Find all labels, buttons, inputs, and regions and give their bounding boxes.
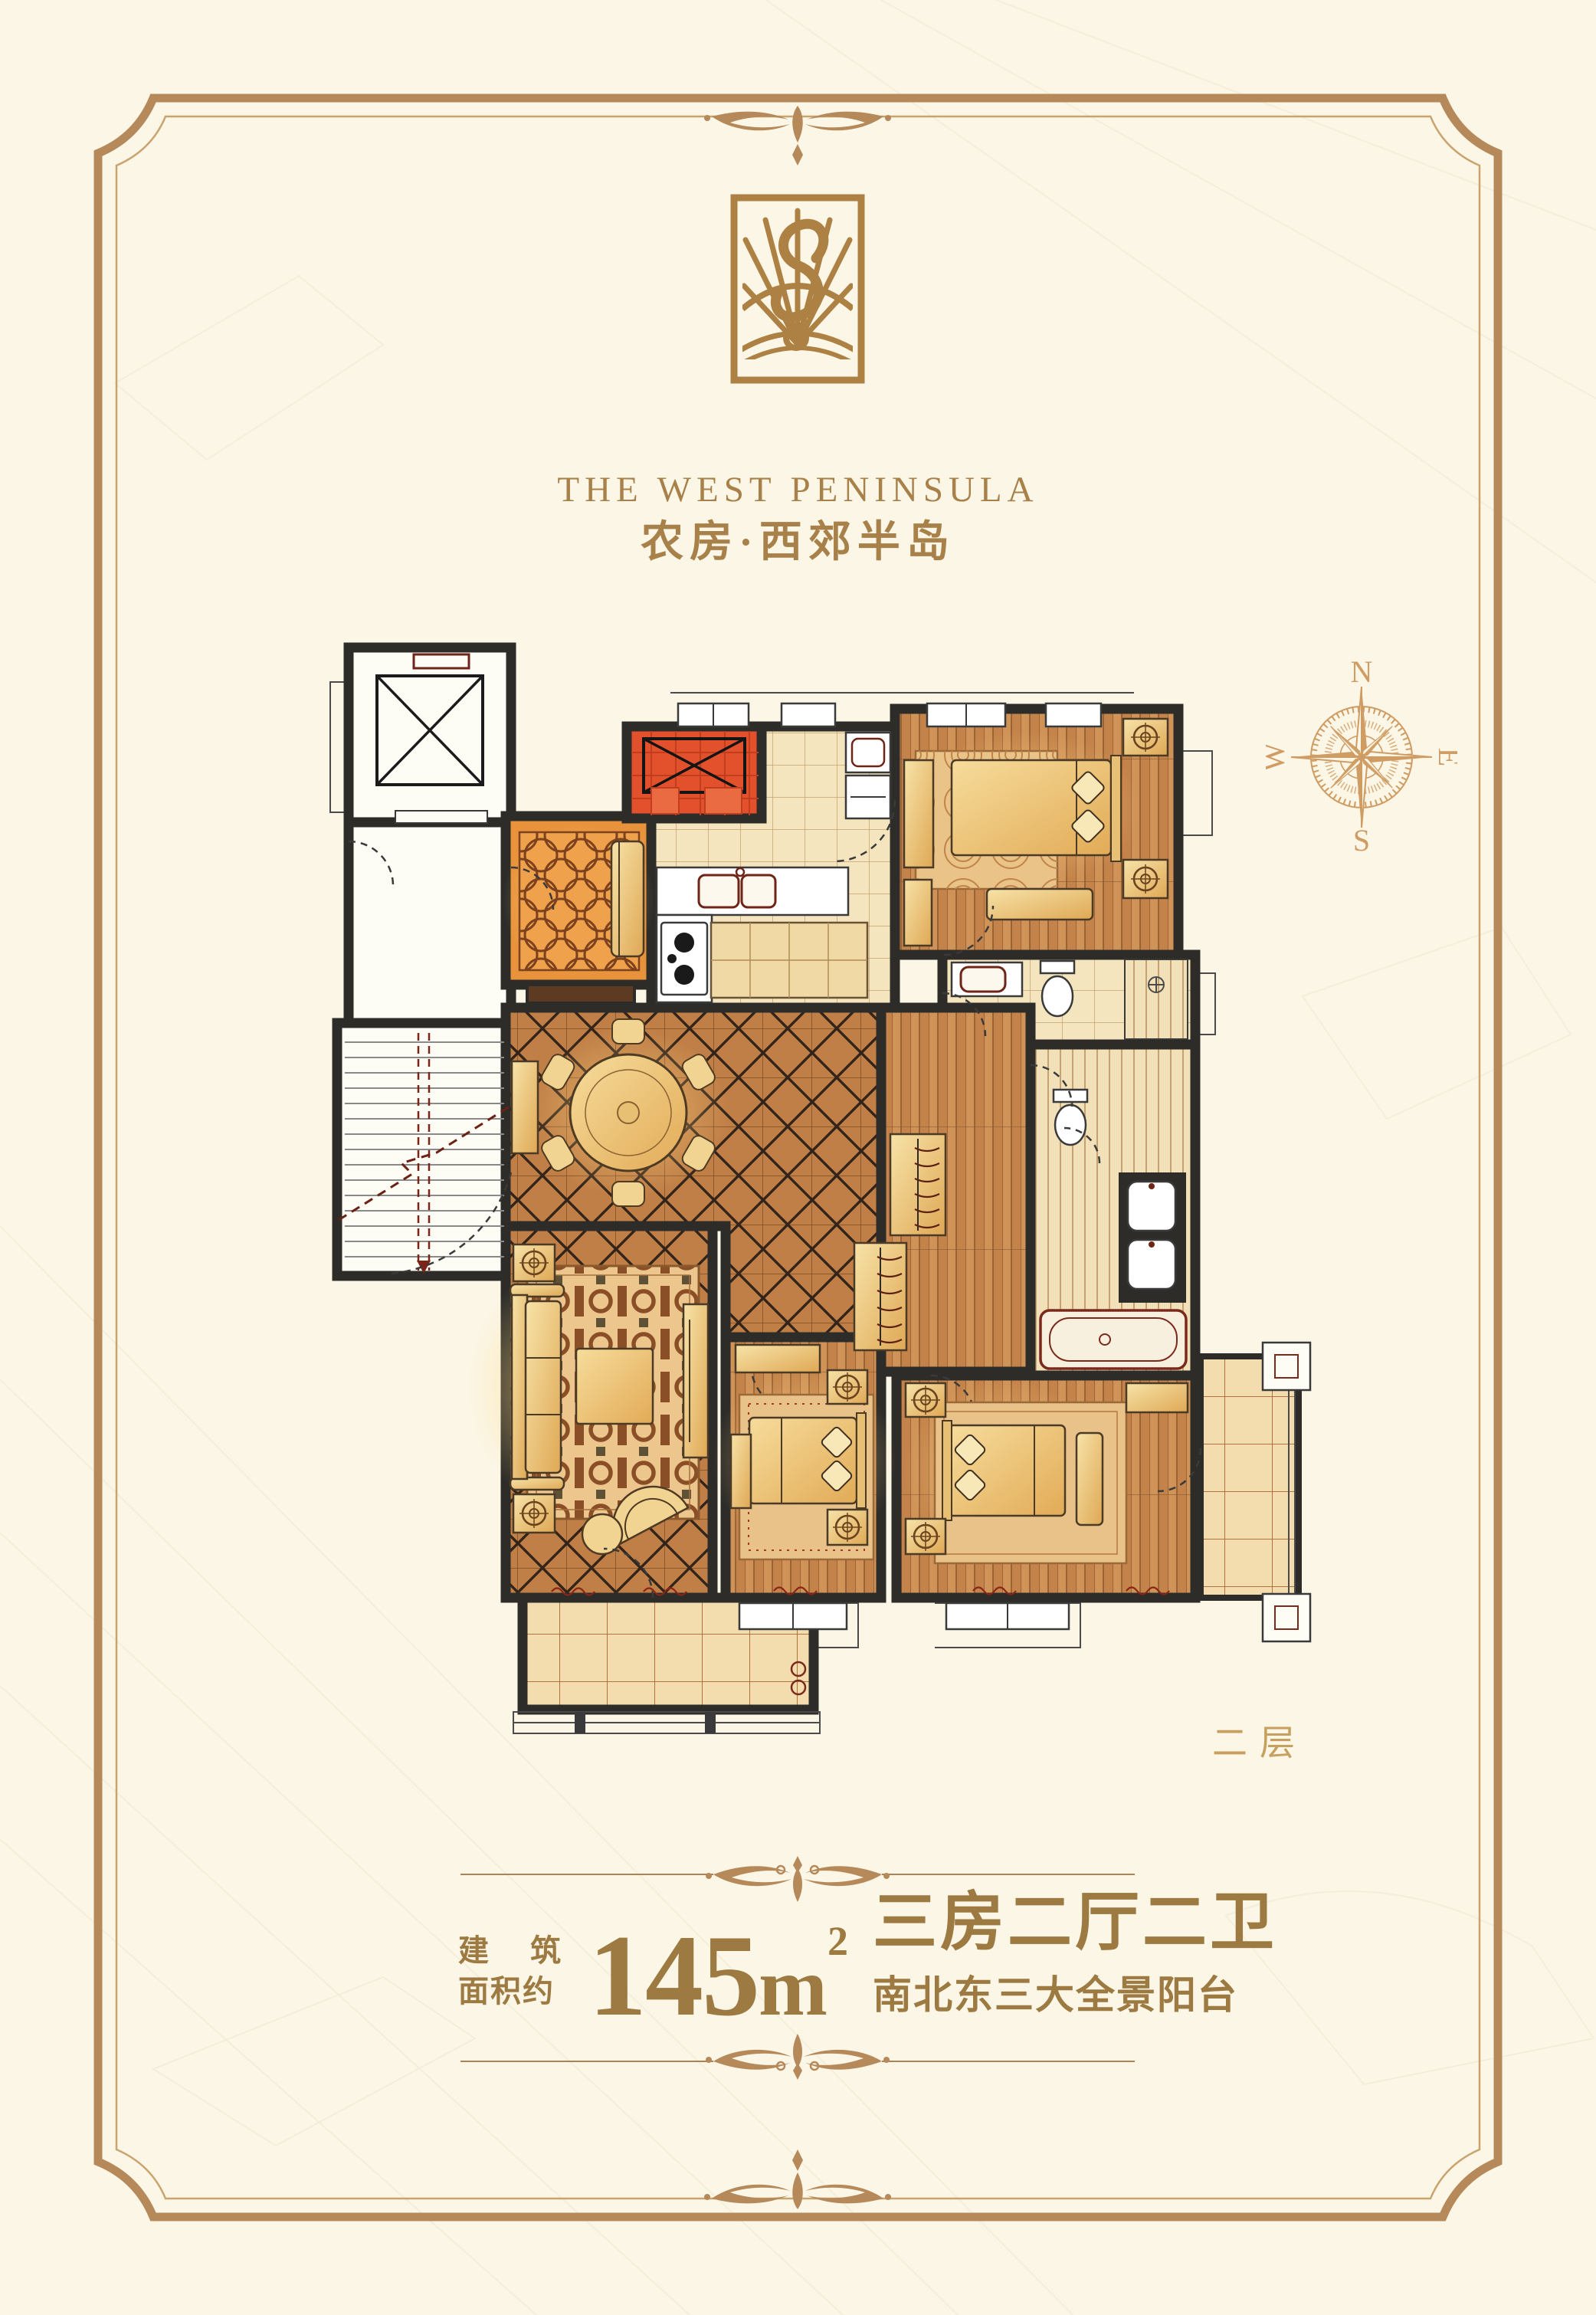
- area-superscript: 2: [827, 1918, 847, 1964]
- area-prefix-top: 建 筑: [458, 1931, 578, 1972]
- area-prefix-bottom: 面积约: [458, 1972, 578, 2012]
- border-flourish-bottom: [704, 2149, 891, 2209]
- divider-bottom: [453, 2025, 1142, 2094]
- elevator-shaft: [349, 648, 511, 822]
- bed-bench: [987, 889, 1093, 920]
- shower: [1125, 959, 1188, 1039]
- dresser: [904, 880, 932, 946]
- west-peninsula-logo: [730, 194, 865, 384]
- area-unit: m: [759, 1942, 827, 2033]
- floor-plan: [322, 636, 1410, 1770]
- divider-flourish: [706, 2034, 890, 2080]
- area-value: 145m2: [588, 1930, 847, 2022]
- logo-fan-motif: [738, 211, 857, 366]
- spec-right: 三房二厅二卫 南北东三大全景阳台: [873, 1891, 1277, 2020]
- border-flourish-top: [704, 106, 891, 166]
- layout-subheadline: 南北东三大全景阳台: [873, 1963, 1277, 2020]
- stair-hall: [349, 822, 511, 1023]
- foyer-sofa: [611, 841, 644, 956]
- balcony-east: [1201, 1356, 1299, 1598]
- cabinet: [736, 1345, 820, 1372]
- layout-headline: 三房二厅二卫: [873, 1891, 1277, 1956]
- brand-name-cn: 农房·西郊半岛: [0, 507, 1596, 569]
- foot-bench: [1077, 1433, 1103, 1525]
- spec-row: 建 筑 面积约 145m2 三房二厅二卫 南北东三大全景阳台: [458, 1891, 1148, 2022]
- pouf: [582, 1514, 622, 1554]
- brand-name-en: THE WEST PENINSULA: [0, 469, 1596, 510]
- sideboard: [512, 1061, 538, 1153]
- floorplan-poster: THE WEST PENINSULA 农房·西郊半岛: [0, 0, 1596, 2315]
- toilet-icon: [1042, 976, 1073, 1016]
- coffee-table: [576, 1349, 653, 1424]
- foyer-threshold: [527, 985, 634, 1003]
- tv-console: [683, 1304, 708, 1458]
- kitchen-sink-icon: [699, 875, 739, 907]
- sink-icon: [961, 967, 1005, 992]
- area-number: 145: [588, 1911, 759, 2040]
- toilet-master-icon: [1055, 1105, 1086, 1145]
- wardrobe: [904, 760, 933, 867]
- area-prefix: 建 筑 面积约: [458, 1931, 578, 2012]
- floor-label: 二层: [1212, 1715, 1307, 1766]
- compass-e: E: [1432, 748, 1457, 766]
